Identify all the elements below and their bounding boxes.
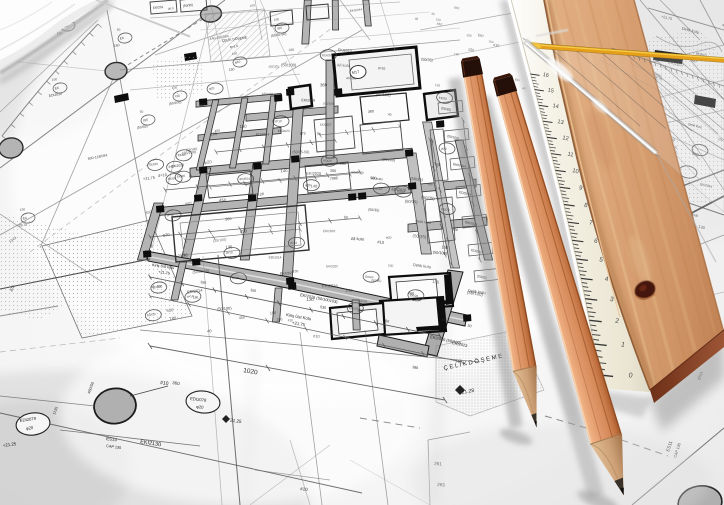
svg-text:φ20: φ20 xyxy=(386,235,392,239)
svg-text:φ20: φ20 xyxy=(185,201,192,206)
svg-text:All kutu: All kutu xyxy=(346,76,357,80)
svg-text:150: 150 xyxy=(274,17,280,22)
svg-text:450: 450 xyxy=(214,129,220,134)
svg-text:d=10: d=10 xyxy=(378,66,386,71)
svg-text:All kutu: All kutu xyxy=(337,62,350,68)
svg-text:140: 140 xyxy=(345,288,353,293)
svg-text:φ20: φ20 xyxy=(305,183,311,187)
svg-text:All kutu: All kutu xyxy=(351,236,365,241)
svg-text:973: 973 xyxy=(300,131,306,136)
svg-text:(50/35): (50/35) xyxy=(405,199,419,205)
svg-text:EKI: EKI xyxy=(515,78,521,83)
svg-text:d=10: d=10 xyxy=(232,276,239,280)
svg-text:(35/100): (35/100) xyxy=(382,158,396,163)
svg-text:φ20: φ20 xyxy=(441,146,447,151)
svg-text:130: 130 xyxy=(340,162,346,166)
svg-text:135: 135 xyxy=(432,279,439,285)
svg-text:450: 450 xyxy=(219,197,227,202)
svg-text:EDI2014: EDI2014 xyxy=(256,133,270,137)
svg-text:φ20: φ20 xyxy=(209,86,215,90)
svg-text:40: 40 xyxy=(388,113,392,117)
svg-text:EKI2026: EKI2026 xyxy=(323,229,335,233)
svg-text:380: 380 xyxy=(368,109,374,114)
svg-text:150: 150 xyxy=(250,3,256,8)
svg-text:EDI20: EDI20 xyxy=(240,177,249,181)
svg-text:530: 530 xyxy=(166,307,174,313)
svg-text:150: 150 xyxy=(239,124,247,129)
svg-text:155: 155 xyxy=(442,317,448,322)
svg-text:50: 50 xyxy=(467,324,472,329)
svg-text:EDI20: EDI20 xyxy=(397,190,406,195)
svg-text:d10: d10 xyxy=(277,26,283,31)
svg-text:180: 180 xyxy=(288,48,294,52)
svg-text:EKI2023: EKI2023 xyxy=(326,264,338,268)
svg-text:(50/35-50): (50/35-50) xyxy=(292,150,309,154)
svg-text:(50/100): (50/100) xyxy=(376,92,392,98)
svg-text:(50/100): (50/100) xyxy=(323,102,335,106)
svg-text:d=10: d=10 xyxy=(158,172,168,178)
svg-text:EDI20: EDI20 xyxy=(323,159,332,163)
svg-text:7085: 7085 xyxy=(330,176,338,181)
svg-text:150: 150 xyxy=(270,311,276,315)
svg-text:EKI2026: EKI2026 xyxy=(301,98,315,102)
svg-text:#10: #10 xyxy=(377,239,385,245)
svg-text:d=10: d=10 xyxy=(375,187,382,192)
svg-text:#10: #10 xyxy=(160,380,169,387)
svg-text:EKI2027: EKI2027 xyxy=(320,123,332,127)
svg-text:(50/35): (50/35) xyxy=(269,64,279,68)
svg-text:EKI20: EKI20 xyxy=(349,306,358,310)
svg-text:360: 360 xyxy=(225,217,232,222)
svg-text:150: 150 xyxy=(20,207,26,212)
svg-text:140: 140 xyxy=(281,168,289,173)
svg-text:d=10: d=10 xyxy=(226,250,233,254)
svg-text:450: 450 xyxy=(181,253,187,258)
svg-text:d=10: d=10 xyxy=(275,119,282,123)
svg-text:d=10: d=10 xyxy=(168,164,176,169)
svg-text:EKI20: EKI20 xyxy=(365,275,374,280)
svg-text:360: 360 xyxy=(330,169,336,173)
svg-text:(50/100): (50/100) xyxy=(281,62,297,67)
svg-text:EKI2023: EKI2023 xyxy=(278,129,290,133)
svg-text:EKI2028: EKI2028 xyxy=(306,171,321,176)
svg-text:530: 530 xyxy=(388,264,394,268)
svg-text:50: 50 xyxy=(385,319,390,324)
svg-text:50: 50 xyxy=(317,132,321,136)
svg-text:φ20: φ20 xyxy=(200,102,206,106)
svg-text:06.0: 06.0 xyxy=(168,6,175,11)
svg-text:150: 150 xyxy=(441,244,449,250)
svg-text:EDI20: EDI20 xyxy=(322,53,331,57)
svg-text:φ20: φ20 xyxy=(204,159,213,165)
svg-text:155: 155 xyxy=(427,182,433,186)
svg-text:All kutu: All kutu xyxy=(261,92,273,97)
svg-text:140: 140 xyxy=(310,184,318,189)
svg-text:180: 180 xyxy=(277,317,283,321)
svg-text:φ20: φ20 xyxy=(196,404,205,410)
svg-text:EDI2014: EDI2014 xyxy=(269,255,282,259)
svg-text:d=10: d=10 xyxy=(290,241,297,245)
svg-text:#10: #10 xyxy=(313,334,321,339)
svg-text:d=10: d=10 xyxy=(360,299,368,303)
svg-text:EKI2027: EKI2027 xyxy=(280,271,294,276)
svg-text:d=10: d=10 xyxy=(187,294,194,299)
svg-text:EKI2028: EKI2028 xyxy=(322,283,339,288)
svg-text:360: 360 xyxy=(320,82,328,87)
